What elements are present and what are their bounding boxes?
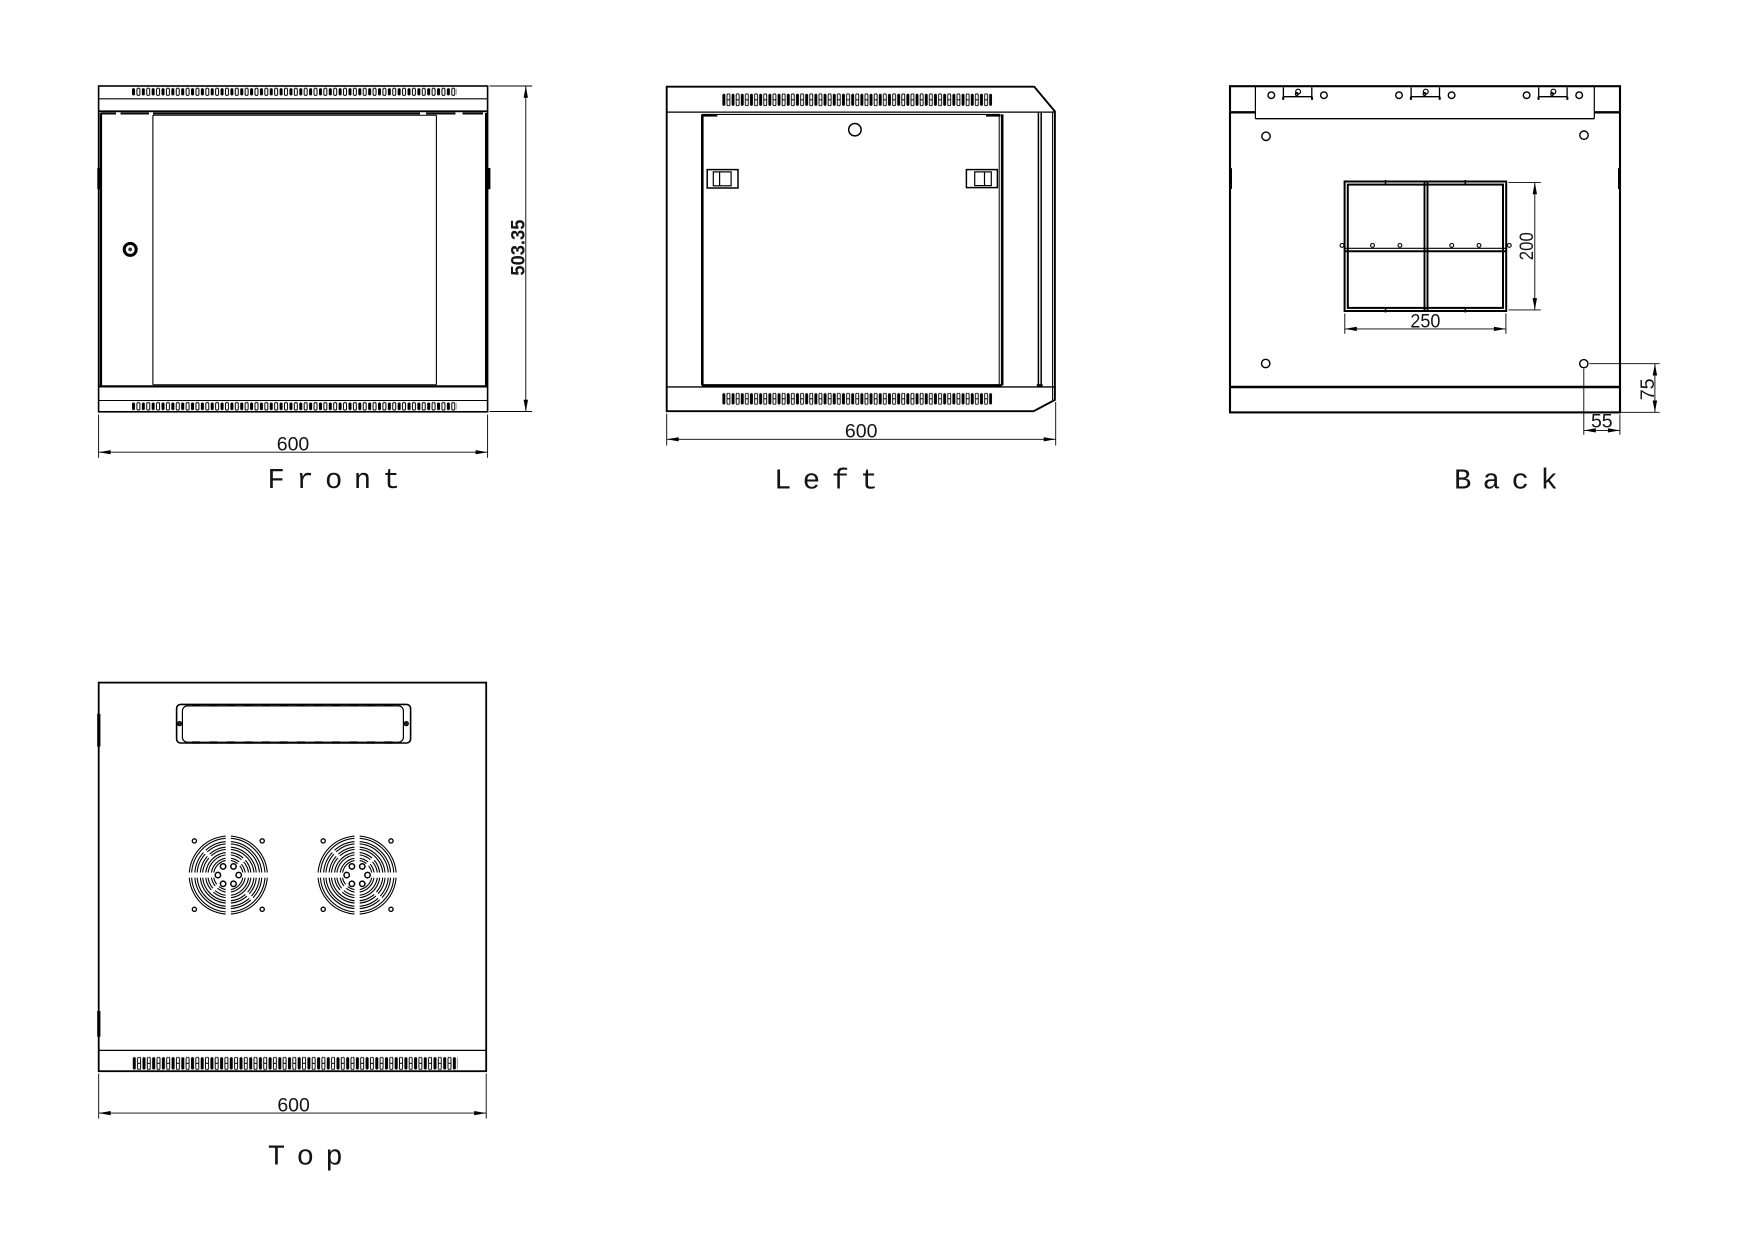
svg-text:600: 600 — [277, 1095, 310, 1117]
svg-text:250: 250 — [1410, 310, 1440, 332]
svg-text:55: 55 — [1591, 411, 1613, 433]
svg-text:Back: Back — [1454, 464, 1569, 497]
svg-text:Left: Left — [774, 465, 889, 498]
svg-text:600: 600 — [845, 421, 878, 443]
svg-text:Top: Top — [268, 1141, 354, 1174]
svg-text:Front: Front — [267, 464, 411, 497]
svg-text:600: 600 — [277, 434, 310, 456]
svg-text:503.35: 503.35 — [508, 219, 530, 275]
svg-text:200: 200 — [1516, 232, 1538, 260]
svg-text:75: 75 — [1637, 378, 1659, 400]
